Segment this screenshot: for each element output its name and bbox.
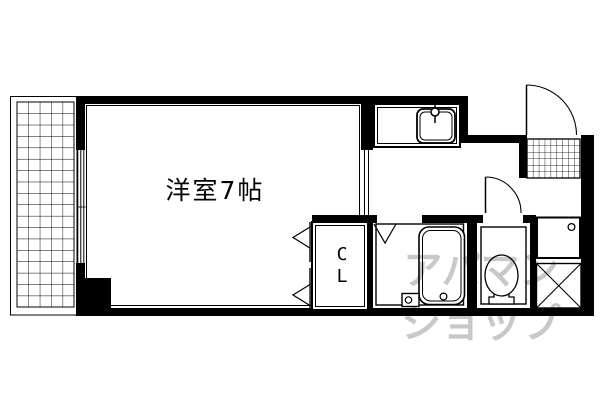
closet-label-c: C xyxy=(331,244,353,265)
entry-tile-icon xyxy=(527,139,580,178)
entrance-door-swing-icon xyxy=(527,85,577,135)
room-sliding-door xyxy=(365,150,369,215)
closet-label-l: L xyxy=(331,266,353,287)
kitchen-counter xyxy=(374,104,460,147)
tub-drain-icon xyxy=(440,293,447,300)
balcony-grid-icon xyxy=(17,102,74,307)
bifold-door-icon xyxy=(293,222,310,310)
balcony xyxy=(11,97,78,316)
room-label: 洋室7帖 xyxy=(157,171,273,207)
folding-door-icon xyxy=(374,224,396,243)
sliding-window-icon xyxy=(77,150,86,264)
toilet-door-swing-icon xyxy=(486,177,522,213)
floor-plan: 洋室7帖 C L アパマン ショップ xyxy=(0,0,600,400)
toilet-door-opening xyxy=(483,215,523,223)
bath-door-opening xyxy=(377,215,422,223)
watermark-line-1: アパマン xyxy=(366,252,596,291)
watermark-line-2: ショップ xyxy=(366,304,596,344)
